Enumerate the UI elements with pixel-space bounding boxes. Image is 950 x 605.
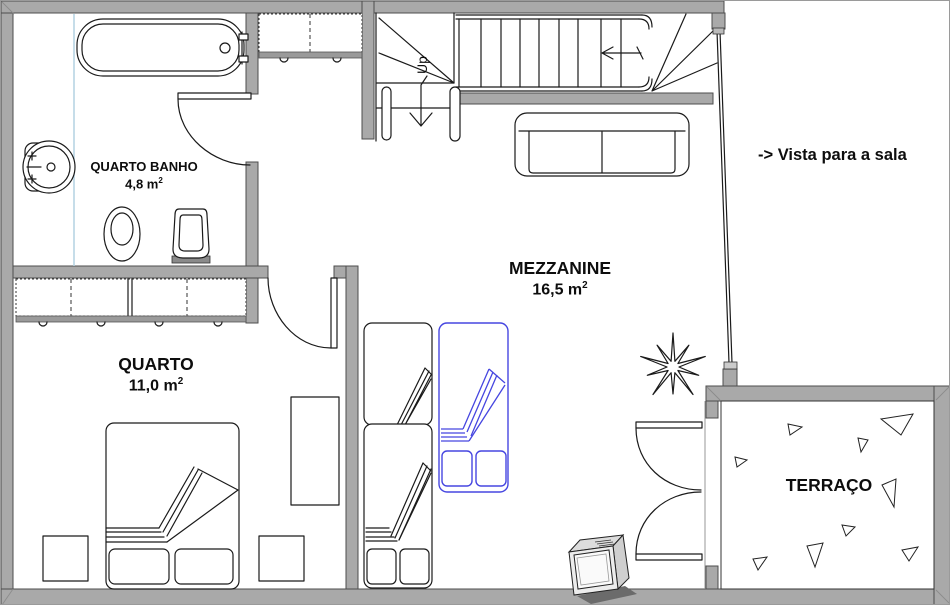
view-annotation: -> Vista para a sala [758, 145, 907, 166]
highlighted-bed [439, 323, 508, 492]
bidet [172, 209, 210, 263]
nightstand-left [43, 536, 88, 581]
mezzanine-label: MEZZANINE 16,5 m2 [480, 257, 640, 301]
terrace-french-doors [636, 422, 702, 560]
single-bed-upper [364, 323, 432, 425]
tv-icon [569, 535, 637, 604]
sofa [515, 113, 689, 176]
stairs-up-label: Up [413, 50, 429, 80]
double-bed [106, 423, 239, 589]
stair-handrail-left [382, 87, 391, 140]
terrace-name: TERRAÇO [749, 474, 909, 497]
desk [291, 397, 339, 505]
mezzanine-area: 16,5 m2 [480, 280, 640, 301]
stair-handrail-right [450, 87, 460, 141]
bedroom-area: 11,0 m2 [76, 376, 236, 397]
floorplan-drawing [1, 1, 950, 605]
mezzanine-name: MEZZANINE [480, 257, 640, 280]
bathroom-door [178, 93, 251, 165]
floor-plan: QUARTO BANHO 4,8 m2 QUARTO 11,0 m2 MEZZA… [0, 0, 950, 605]
bedroom-name: QUARTO [76, 353, 236, 376]
wardrobe [16, 279, 246, 326]
single-bed-lower [364, 424, 432, 588]
bathroom-label: QUARTO BANHO 4,8 m2 [64, 159, 224, 193]
bathtub [77, 19, 248, 76]
bathroom-name: QUARTO BANHO [64, 159, 224, 176]
stair-arrow-run [602, 47, 643, 59]
toilet [104, 207, 140, 261]
hall-closet [259, 14, 362, 62]
bathroom-area: 4,8 m2 [64, 176, 224, 193]
bedroom-door [268, 278, 337, 348]
plant-icon [641, 333, 706, 395]
bedroom-label: QUARTO 11,0 m2 [76, 353, 236, 397]
nightstand-right [259, 536, 304, 581]
terrace-label: TERRAÇO [749, 474, 909, 497]
